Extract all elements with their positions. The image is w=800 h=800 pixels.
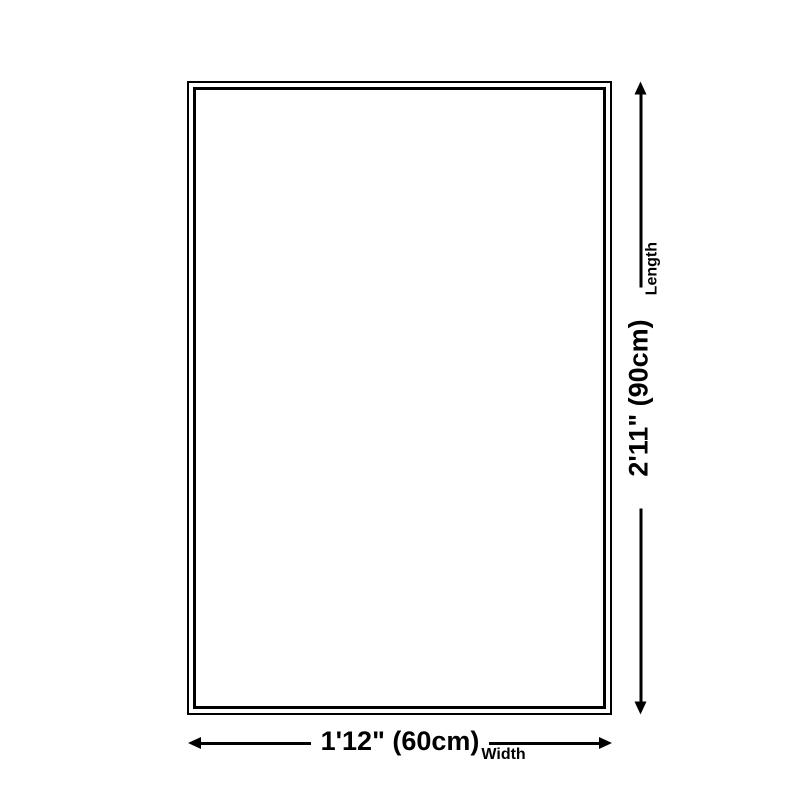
width-dimension: 1'12" (60cm) Width xyxy=(188,725,612,761)
product-outline-inner xyxy=(193,87,606,709)
arrow-left-icon xyxy=(188,737,201,749)
product-outline xyxy=(187,81,612,715)
length-dimension-line-bottom xyxy=(639,509,642,702)
length-label: Length xyxy=(644,242,660,295)
length-dimension-line-top: Length xyxy=(639,94,642,287)
arrow-right-icon xyxy=(599,737,612,749)
length-value: 2'11" (90cm) xyxy=(626,287,656,508)
width-value: 1'12" (60cm) xyxy=(311,728,490,758)
length-dimension: 2'11" (90cm) Length xyxy=(621,82,661,715)
width-dimension-line-right: Width xyxy=(489,742,599,745)
size-diagram-page: { "page": { "background_color": "#ffffff… xyxy=(0,0,800,800)
arrow-down-icon xyxy=(635,702,647,715)
width-dimension-line-left xyxy=(201,742,311,745)
width-label: Width xyxy=(481,747,525,763)
arrow-up-icon xyxy=(635,81,647,94)
